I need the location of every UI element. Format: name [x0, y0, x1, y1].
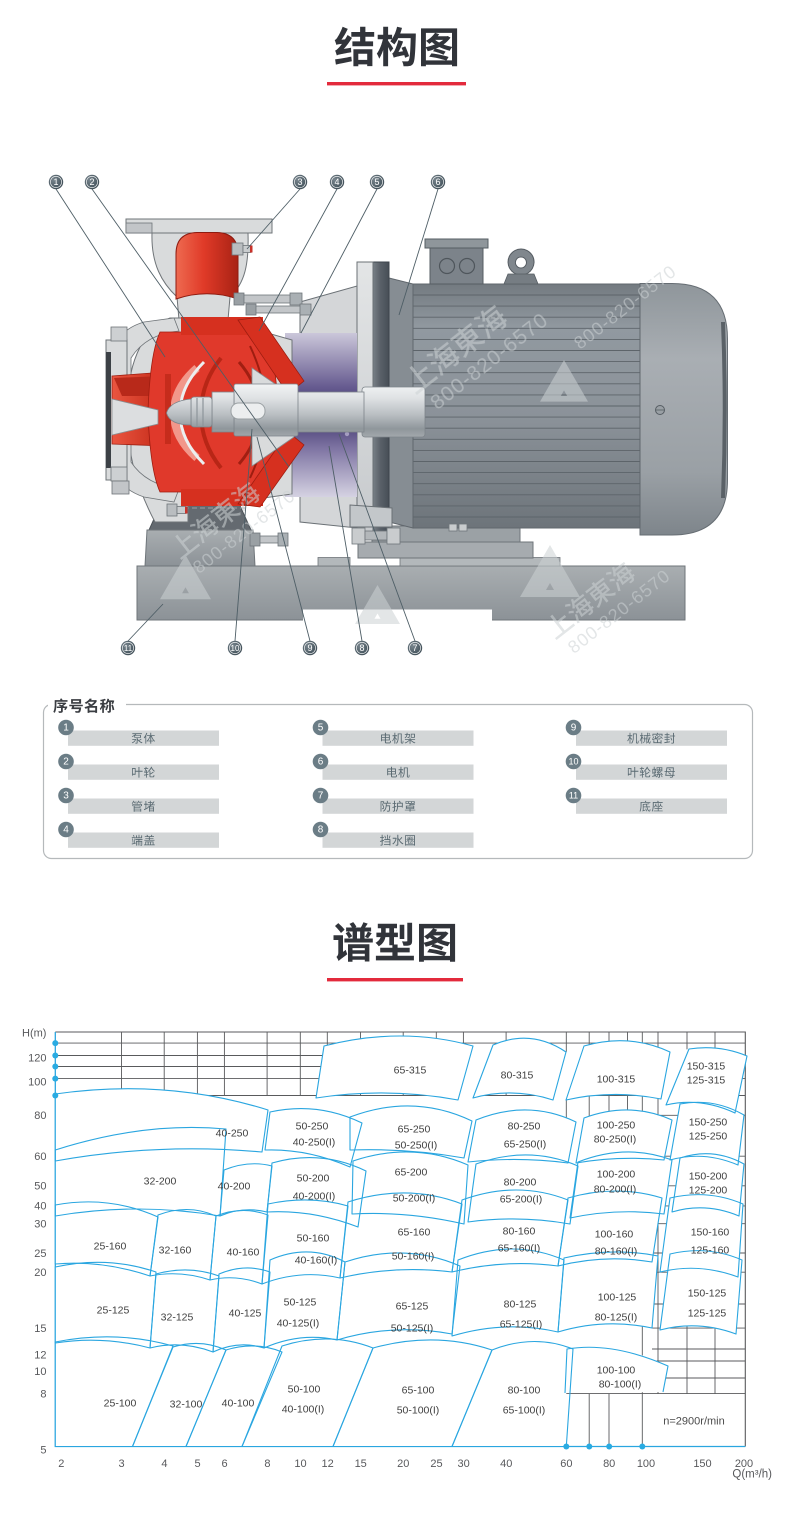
- svg-text:4: 4: [63, 825, 69, 836]
- svg-text:9: 9: [307, 643, 312, 653]
- svg-text:H(m): H(m): [22, 1028, 46, 1040]
- svg-text:5: 5: [318, 723, 324, 734]
- svg-text:3: 3: [63, 791, 69, 802]
- svg-text:65-100(I): 65-100(I): [503, 1405, 546, 1417]
- svg-text:5: 5: [374, 177, 379, 187]
- svg-text:7: 7: [318, 791, 324, 802]
- svg-text:20: 20: [397, 1458, 409, 1470]
- svg-text:40-250: 40-250: [216, 1128, 249, 1140]
- svg-text:150-200: 150-200: [689, 1171, 728, 1183]
- svg-text:100-200: 100-200: [597, 1169, 636, 1181]
- svg-text:100-125: 100-125: [598, 1292, 637, 1304]
- svg-text:125-125: 125-125: [688, 1308, 727, 1320]
- svg-text:150-160: 150-160: [691, 1227, 730, 1239]
- svg-text:25-100: 25-100: [104, 1398, 137, 1410]
- svg-text:3: 3: [297, 177, 302, 187]
- svg-text:40-160: 40-160: [227, 1247, 260, 1259]
- svg-text:40-125(I): 40-125(I): [277, 1318, 320, 1330]
- svg-text:9: 9: [571, 723, 577, 734]
- svg-text:65-200(I): 65-200(I): [500, 1194, 543, 1206]
- svg-text:125-200: 125-200: [689, 1185, 728, 1197]
- svg-text:25-160: 25-160: [94, 1241, 127, 1253]
- svg-text:50-250: 50-250: [296, 1121, 329, 1133]
- svg-text:80-100: 80-100: [508, 1385, 541, 1397]
- svg-text:32-100: 32-100: [170, 1399, 203, 1411]
- svg-text:50-200: 50-200: [297, 1173, 330, 1185]
- svg-text:80-250: 80-250: [508, 1121, 541, 1133]
- svg-text:25: 25: [430, 1458, 442, 1470]
- svg-text:65-200: 65-200: [395, 1167, 428, 1179]
- svg-text:1: 1: [53, 177, 58, 187]
- svg-text:25-125: 25-125: [97, 1305, 130, 1317]
- svg-text:100-160: 100-160: [595, 1229, 634, 1241]
- svg-text:4: 4: [161, 1458, 167, 1470]
- svg-text:80-160(I): 80-160(I): [595, 1246, 638, 1258]
- svg-text:50-125(I): 50-125(I): [391, 1323, 434, 1335]
- svg-text:150-125: 150-125: [688, 1288, 727, 1300]
- svg-text:65-125: 65-125: [396, 1301, 429, 1313]
- svg-text:40-100: 40-100: [222, 1398, 255, 1410]
- svg-text:10: 10: [34, 1366, 46, 1378]
- svg-text:40-125: 40-125: [229, 1308, 262, 1320]
- svg-text:100-315: 100-315: [597, 1074, 636, 1086]
- svg-text:60: 60: [34, 1151, 46, 1163]
- svg-text:32-160: 32-160: [159, 1245, 192, 1257]
- svg-text:65-250(I): 65-250(I): [504, 1139, 547, 1151]
- svg-text:80-125(I): 80-125(I): [595, 1312, 638, 1324]
- svg-text:50: 50: [34, 1181, 46, 1193]
- svg-text:2: 2: [58, 1458, 64, 1470]
- svg-text:10: 10: [294, 1458, 306, 1470]
- svg-text:40-200(I): 40-200(I): [293, 1191, 336, 1203]
- svg-text:80: 80: [34, 1110, 46, 1122]
- svg-text:8: 8: [40, 1388, 46, 1400]
- svg-text:5: 5: [40, 1444, 46, 1456]
- svg-text:100: 100: [637, 1458, 655, 1470]
- svg-text:125-160: 125-160: [691, 1245, 730, 1257]
- svg-text:5: 5: [194, 1458, 200, 1470]
- svg-text:12: 12: [34, 1350, 46, 1362]
- svg-text:100-250: 100-250: [597, 1120, 636, 1132]
- svg-text:8: 8: [359, 643, 364, 653]
- svg-text:40: 40: [500, 1458, 512, 1470]
- svg-text:11: 11: [124, 644, 133, 653]
- svg-text:50-100: 50-100: [288, 1384, 321, 1396]
- svg-text:4: 4: [334, 177, 339, 187]
- svg-text:11: 11: [569, 791, 578, 801]
- svg-text:15: 15: [355, 1458, 367, 1470]
- svg-text:65-250: 65-250: [398, 1124, 431, 1136]
- svg-text:6: 6: [318, 757, 324, 768]
- svg-text:40-100(I): 40-100(I): [282, 1404, 325, 1416]
- svg-text:10: 10: [231, 644, 240, 653]
- svg-text:65-160: 65-160: [398, 1227, 431, 1239]
- svg-text:40-200: 40-200: [218, 1181, 251, 1193]
- svg-text:12: 12: [321, 1458, 333, 1470]
- svg-text:40-160(I): 40-160(I): [295, 1255, 338, 1267]
- svg-text:60: 60: [560, 1458, 572, 1470]
- svg-text:125-250: 125-250: [689, 1131, 728, 1143]
- svg-text:40: 40: [34, 1201, 46, 1213]
- svg-text:50-250(I): 50-250(I): [395, 1140, 438, 1152]
- svg-text:80-125: 80-125: [504, 1299, 537, 1311]
- svg-text:65-100: 65-100: [402, 1385, 435, 1397]
- svg-text:8: 8: [264, 1458, 270, 1470]
- svg-text:7: 7: [412, 643, 417, 653]
- svg-text:32-125: 32-125: [161, 1312, 194, 1324]
- svg-text:2: 2: [89, 177, 94, 187]
- svg-text:50-200(I): 50-200(I): [393, 1193, 436, 1205]
- svg-text:2: 2: [63, 757, 69, 768]
- svg-text:50-125: 50-125: [284, 1297, 317, 1309]
- svg-text:150-250: 150-250: [689, 1117, 728, 1129]
- svg-text:100: 100: [28, 1076, 46, 1088]
- svg-text:80-250(I): 80-250(I): [594, 1134, 637, 1146]
- svg-text:50-160: 50-160: [297, 1233, 330, 1245]
- svg-text:80-315: 80-315: [501, 1070, 534, 1082]
- svg-text:150-315: 150-315: [687, 1061, 726, 1073]
- svg-text:8: 8: [318, 825, 324, 836]
- svg-text:6: 6: [435, 177, 440, 187]
- svg-text:n=2900r/min: n=2900r/min: [663, 1416, 724, 1428]
- svg-text:80-200(I): 80-200(I): [594, 1184, 637, 1196]
- svg-text:Q(m³/h): Q(m³/h): [732, 1469, 772, 1481]
- svg-text:80: 80: [603, 1458, 615, 1470]
- svg-text:20: 20: [34, 1267, 46, 1279]
- svg-text:150: 150: [693, 1458, 711, 1470]
- svg-text:80-200: 80-200: [504, 1177, 537, 1189]
- svg-text:6: 6: [221, 1458, 227, 1470]
- svg-text:15: 15: [34, 1323, 46, 1335]
- svg-text:65-125(I): 65-125(I): [500, 1319, 543, 1331]
- svg-text:65-160(I): 65-160(I): [498, 1243, 541, 1255]
- svg-text:30: 30: [457, 1458, 469, 1470]
- svg-text:50-160(I): 50-160(I): [392, 1251, 435, 1263]
- svg-text:80-160: 80-160: [503, 1226, 536, 1238]
- svg-text:1: 1: [63, 723, 69, 734]
- svg-text:65-315: 65-315: [394, 1065, 427, 1077]
- svg-text:30: 30: [34, 1219, 46, 1231]
- svg-text:40-250(I): 40-250(I): [293, 1137, 336, 1149]
- svg-text:120: 120: [28, 1052, 46, 1064]
- svg-text:10: 10: [568, 757, 578, 767]
- svg-text:125-315: 125-315: [687, 1075, 726, 1087]
- svg-text:100-100: 100-100: [597, 1365, 636, 1377]
- svg-text:80-100(I): 80-100(I): [599, 1379, 642, 1391]
- svg-text:50-100(I): 50-100(I): [397, 1405, 440, 1417]
- svg-text:3: 3: [118, 1458, 124, 1470]
- svg-text:32-200: 32-200: [144, 1176, 177, 1188]
- svg-text:25: 25: [34, 1248, 46, 1260]
